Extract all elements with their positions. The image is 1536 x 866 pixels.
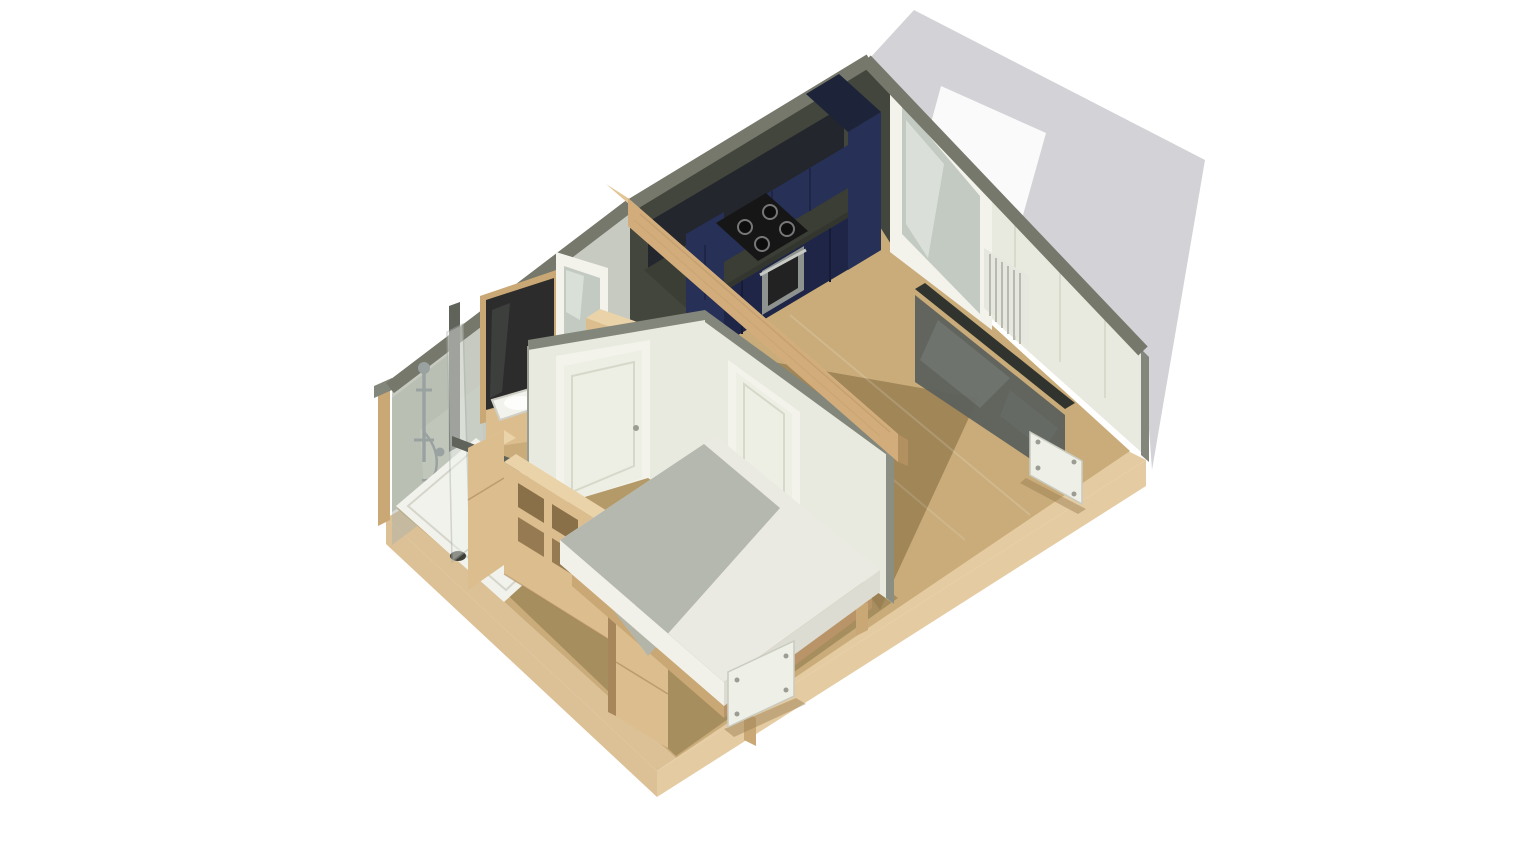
hob-burner (763, 205, 777, 219)
hob-burner (755, 237, 769, 251)
hob-burner (780, 222, 794, 236)
heater-panel-screw (784, 654, 789, 659)
isometric-scene (0, 0, 1536, 866)
heater-panel-screw (1072, 460, 1077, 465)
heater-panel-screw (1072, 492, 1077, 497)
apartment-render (0, 0, 1536, 866)
heater-panel-screw (1036, 440, 1041, 445)
wall-outer-wood-edge (378, 386, 390, 526)
door-leaf (564, 350, 642, 504)
shelf-left-column (468, 430, 504, 590)
heater-panel-screw (784, 688, 789, 693)
heater-panel-screw (735, 712, 740, 717)
wall-outer-right-band (1141, 349, 1149, 462)
hob-burner (738, 220, 752, 234)
bedroom-right-wall-end-trim (886, 448, 894, 604)
heater-panel-screw (1036, 466, 1041, 471)
door-handle (633, 425, 639, 431)
shower-head (418, 362, 430, 374)
shower-handset (436, 448, 445, 457)
kitchen-tall-column-right (848, 112, 881, 270)
heater-panel-screw (735, 678, 740, 683)
